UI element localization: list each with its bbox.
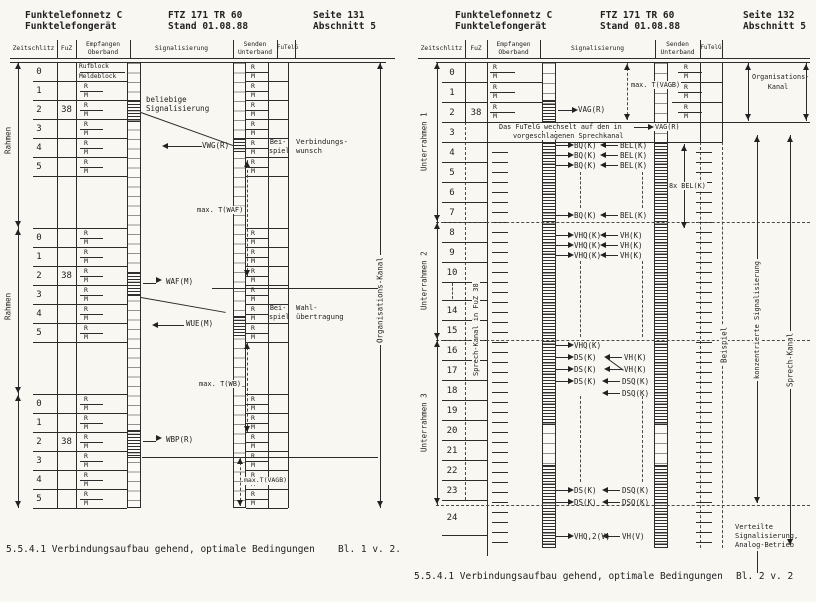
grid-line	[80, 333, 103, 334]
grid-line	[33, 304, 127, 305]
grid-line	[33, 342, 127, 343]
tick	[492, 192, 508, 193]
slot-number: 1	[28, 86, 50, 97]
sprechkanal-fuz-label: Sprech-Kanal in FuZ 38	[469, 230, 483, 430]
arrow-up-icon	[244, 161, 250, 167]
dashed-line	[642, 261, 643, 337]
slot-number: 4	[28, 309, 50, 320]
sprechkanal-label-text: Sprech-Kanal	[786, 331, 795, 389]
dimension-line	[806, 63, 807, 121]
signal-label: BEL(K)	[620, 161, 647, 170]
slot-number: 9	[440, 248, 464, 259]
grid-line	[246, 404, 268, 405]
column-header: Unterband	[233, 49, 277, 57]
grid-line	[80, 91, 103, 92]
rm-label: R	[251, 268, 255, 276]
grid-line	[608, 393, 620, 394]
rm-label: R	[84, 83, 88, 91]
grid-line	[142, 457, 378, 458]
tick	[696, 282, 712, 283]
grid-line	[490, 112, 515, 113]
grid-line	[80, 167, 103, 168]
grid-line	[80, 314, 103, 315]
grid-line	[418, 58, 810, 59]
grid-line	[608, 381, 620, 382]
organisationskanal-label: Organisations-Kanal	[373, 225, 387, 375]
tick	[492, 522, 508, 523]
slot-number: 22	[440, 466, 464, 477]
tick	[492, 212, 508, 213]
rm-label: M	[251, 130, 255, 138]
rm-label: R	[251, 396, 255, 404]
unterrahmen-label-text: Unterrahmen 2	[420, 250, 429, 313]
tick	[492, 392, 508, 393]
rm-label: R	[84, 396, 88, 404]
column-header: Signalisierung	[130, 45, 233, 53]
rm-label: R	[84, 121, 88, 129]
tick	[492, 322, 508, 323]
grid-line	[608, 502, 620, 503]
rm-label: R	[684, 64, 688, 72]
tick	[696, 252, 712, 253]
grid-line	[33, 413, 127, 414]
grid-line	[442, 480, 487, 481]
grid-line	[608, 536, 620, 537]
grid-line	[80, 404, 103, 405]
slot-number: 5	[28, 328, 50, 339]
rm-label: M	[493, 93, 497, 101]
timer-label: max. T(VAGB)	[630, 81, 681, 89]
rahmen-label-text: Rahmen	[4, 290, 13, 321]
tick	[492, 452, 508, 453]
grid-line	[556, 235, 568, 236]
rm-label: M	[84, 462, 88, 470]
grid-line	[490, 72, 515, 73]
rm-label: M	[84, 239, 88, 247]
tick	[492, 152, 508, 153]
rm-label: R	[251, 325, 255, 333]
tick	[492, 232, 508, 233]
grid-line	[246, 91, 268, 92]
signal-label: DS(K)	[574, 377, 597, 386]
grid-line	[490, 92, 515, 93]
signal-label: DS(K)	[574, 498, 597, 507]
rm-label: R	[251, 159, 255, 167]
tick	[696, 392, 712, 393]
arrow-down-icon	[745, 114, 751, 120]
grid-line	[80, 257, 103, 258]
rm-label: R	[251, 64, 255, 72]
tick	[696, 272, 712, 273]
grid-line	[606, 215, 618, 216]
slot-number: 2	[28, 271, 50, 282]
tick	[696, 262, 712, 263]
rm-label: M	[684, 73, 688, 81]
rm-label: M	[493, 113, 497, 121]
slot-number: 5	[440, 168, 464, 179]
rm-label: M	[84, 334, 88, 342]
caption: 5.5.4.1 Verbindungsaufbau gehend, optima…	[414, 571, 723, 582]
slot-number: 18	[440, 386, 464, 397]
slot-number: 2	[440, 108, 464, 119]
grid-line	[80, 238, 103, 239]
rm-label: M	[251, 258, 255, 266]
dimension-line	[437, 340, 438, 505]
rm-label: M	[84, 481, 88, 489]
slot-number: 4	[440, 148, 464, 159]
signal-label: BEL(K)	[620, 141, 647, 150]
tick	[696, 362, 712, 363]
tick	[492, 432, 508, 433]
signal-label: DSQ(K)	[622, 486, 649, 495]
rm-label: R	[684, 84, 688, 92]
grid-line	[33, 470, 127, 471]
grid-line	[80, 129, 103, 130]
grid-line	[80, 276, 103, 277]
rm-label: M	[251, 149, 255, 157]
rm-label: R	[251, 306, 255, 314]
grid-line	[442, 122, 487, 123]
arrow-up-icon	[15, 229, 21, 235]
doc-ref: Stand 01.08.88	[168, 21, 248, 32]
rahmen-label-text: Rahmen	[4, 124, 13, 155]
arrow-down-icon	[15, 501, 21, 507]
annotation: Bei-	[269, 304, 287, 312]
grid-line	[246, 110, 268, 111]
signal-label: VH(K)	[620, 251, 643, 260]
signal-label: WAF(M)	[166, 277, 193, 286]
slot-number: 2	[28, 437, 50, 448]
arrow-up-icon	[377, 63, 383, 69]
signal-label: DS(K)	[574, 353, 597, 362]
annotation: beliebige	[146, 95, 187, 104]
grid-line	[442, 500, 487, 501]
rm-label: R	[684, 104, 688, 112]
grid-line	[168, 146, 202, 147]
arrow-right-icon	[156, 277, 162, 283]
slot-number: 8	[440, 228, 464, 239]
grid-line	[442, 440, 487, 441]
grid-line	[33, 176, 127, 177]
fuz-value: 38	[57, 271, 76, 282]
dimension-line	[18, 394, 19, 508]
signal-label: WBP(R)	[166, 435, 193, 444]
grid-line	[80, 480, 103, 481]
grid-line	[490, 82, 542, 83]
konzentrierte-signalisierung-label-text: konzentrierte Signalisierung	[753, 259, 761, 381]
grid-line	[33, 266, 127, 267]
grid-line	[606, 165, 618, 166]
grid-line	[33, 247, 127, 248]
tick	[696, 292, 712, 293]
grid-line	[246, 72, 268, 73]
arrow-down-icon	[434, 498, 440, 504]
rm-label: M	[84, 405, 88, 413]
timer-label: max.T(VAGB)	[243, 477, 288, 485]
dashed-line	[247, 342, 248, 432]
grid-line	[606, 255, 618, 256]
grid-line	[33, 285, 127, 286]
slot-number: 1	[28, 418, 50, 429]
tick	[492, 442, 508, 443]
grid-line	[33, 81, 127, 82]
arrow-up-icon	[434, 223, 440, 229]
hatch-block	[127, 100, 141, 122]
rm-label: R	[251, 140, 255, 148]
rm-label: R	[84, 491, 88, 499]
grid-line	[80, 110, 103, 111]
rm-label: M	[251, 111, 255, 119]
beispiel-label-text: Beispiel	[720, 325, 729, 365]
grid-line	[143, 441, 156, 442]
grid-line	[33, 489, 127, 490]
grid-line	[606, 235, 618, 236]
grid-line	[212, 288, 378, 289]
slot-number: 5	[28, 162, 50, 173]
slot-number: 2	[28, 105, 50, 116]
grid-line	[246, 176, 288, 177]
dashed-line	[580, 396, 581, 482]
grid-line	[757, 551, 758, 573]
grid-line	[442, 82, 487, 83]
scanned-document-page: Funktelefonnetz CFunktelefongerätFTZ 171…	[0, 0, 816, 602]
rm-label: R	[84, 249, 88, 257]
grid-line	[246, 238, 268, 239]
annotation: wunsch	[296, 147, 322, 156]
grid-line	[288, 62, 289, 508]
dashed-line	[240, 457, 241, 506]
tick	[696, 482, 712, 483]
signal-label: VHQ(K)	[574, 231, 601, 240]
tick	[696, 372, 712, 373]
grid-line	[246, 129, 268, 130]
rm-label: M	[251, 277, 255, 285]
tick	[696, 342, 712, 343]
arrow-down-icon	[15, 387, 21, 393]
section-number: Abschnitt 5	[313, 21, 376, 32]
rm-label: R	[251, 230, 255, 238]
grid-line	[556, 345, 568, 346]
tick	[696, 312, 712, 313]
rm-label: M	[251, 73, 255, 81]
arrow-down-icon	[377, 501, 383, 507]
arrow-down-icon	[434, 333, 440, 339]
tick	[492, 362, 508, 363]
arrow-down-icon	[681, 222, 687, 228]
tick	[696, 442, 712, 443]
rm-label: R	[84, 325, 88, 333]
rm-label: R	[84, 434, 88, 442]
rm-label: R	[84, 268, 88, 276]
annotation: Signalisierung	[146, 104, 209, 113]
signal-label: DSQ(K)	[622, 377, 649, 386]
rm-label: R	[84, 159, 88, 167]
tick	[492, 332, 508, 333]
grid-line	[556, 245, 568, 246]
rm-label: M	[84, 443, 88, 451]
signal-label: VH(K)	[620, 231, 643, 240]
arrow-up-icon	[803, 64, 809, 70]
tick	[492, 402, 508, 403]
grid-line	[442, 142, 487, 143]
organisationskanal-label-text: Organisations-Kanal	[376, 255, 385, 345]
rm-label: M	[251, 405, 255, 413]
annotation: übertragung	[296, 313, 344, 322]
slot-number: 4	[28, 475, 50, 486]
sheet-number: Bl. 1 v. 2.	[338, 544, 401, 555]
tick	[492, 462, 508, 463]
signal-label: VH(K)	[620, 241, 643, 250]
rm-label: M	[251, 424, 255, 432]
fuz-value: 38	[57, 437, 76, 448]
rm-label: M	[684, 113, 688, 121]
tick	[696, 322, 712, 323]
dashed-line	[580, 172, 581, 208]
rm-label: M	[251, 500, 255, 508]
rm-label: M	[251, 296, 255, 304]
dashed-line	[247, 160, 248, 276]
grid-line	[556, 357, 568, 358]
dashed-line	[436, 222, 810, 223]
konzentrierte-signalisierung-label: konzentrierte Signalisierung	[750, 230, 764, 410]
rm-label: R	[251, 491, 255, 499]
arrow-up-icon	[681, 145, 687, 151]
arrow-up-icon	[624, 64, 630, 70]
tick	[492, 172, 508, 173]
arrow-up-icon	[754, 136, 760, 142]
grid-line	[606, 245, 618, 246]
grid-line	[80, 442, 103, 443]
arrow-up-icon	[15, 63, 21, 69]
dimension-line	[437, 222, 438, 340]
hatch-block	[542, 142, 556, 425]
tick	[696, 332, 712, 333]
arrow-down-icon	[244, 426, 250, 432]
rm-label: M	[251, 334, 255, 342]
dimension-line	[18, 62, 19, 228]
rm-label: R	[84, 306, 88, 314]
page-title: Funktelefonnetz C	[25, 10, 122, 21]
signal-label: WUE(M)	[186, 319, 213, 328]
tick	[492, 252, 508, 253]
tick	[696, 532, 712, 533]
slot-number: 14	[440, 306, 464, 317]
annotation: Signalisierung,	[735, 532, 798, 540]
signal-label: VAG(R)	[578, 105, 605, 114]
unterrahmen-label-text: Unterrahmen 3	[420, 391, 429, 454]
rm-label: R	[251, 415, 255, 423]
arrow-right-icon	[156, 435, 162, 441]
slot-number: 17	[440, 366, 464, 377]
organisationskanal-label: Kanal	[752, 83, 804, 91]
grid-line	[33, 508, 127, 509]
grid-line	[80, 72, 125, 73]
tick	[492, 492, 508, 493]
arrow-down-icon	[15, 221, 21, 227]
grid-line	[246, 333, 268, 334]
grid-line	[608, 490, 620, 491]
annotation: spiel	[269, 147, 287, 155]
grid-line	[556, 490, 568, 491]
grid-line	[33, 228, 127, 229]
tick	[492, 422, 508, 423]
column-header: Oberband	[487, 49, 540, 57]
tick	[696, 412, 712, 413]
column-header: Signalisierung	[540, 45, 655, 53]
arrow-down-icon	[803, 114, 809, 120]
tick	[696, 472, 712, 473]
tick	[492, 182, 508, 183]
grid-line	[722, 62, 723, 142]
grid-line	[722, 40, 723, 58]
slot-number: 3	[28, 456, 50, 467]
hatch-block	[127, 430, 141, 458]
grid-line	[678, 72, 702, 73]
tick	[492, 382, 508, 383]
tick	[492, 482, 508, 483]
rm-label: R	[493, 64, 497, 72]
channel-strip	[233, 62, 246, 508]
signal-label: DS(K)	[574, 486, 597, 495]
rm-label: R	[84, 230, 88, 238]
slot-number: 0	[28, 67, 50, 78]
rm-label: R	[251, 83, 255, 91]
grid-line	[442, 182, 487, 183]
tick	[696, 542, 712, 543]
timer-label: max. T(WAF)	[196, 206, 244, 214]
page-number: Seite 131	[313, 10, 364, 21]
slot-number: 15	[440, 326, 464, 337]
dashed-line	[627, 63, 628, 120]
tick	[696, 452, 712, 453]
slot-number: 16	[440, 346, 464, 357]
grid-line	[33, 100, 127, 101]
annotation: spiel	[269, 313, 287, 321]
grid-line	[158, 325, 184, 326]
rm-label: R	[84, 415, 88, 423]
rm-label: M	[251, 315, 255, 323]
grid-line	[246, 423, 268, 424]
hatch-block	[127, 272, 141, 296]
tick	[696, 382, 712, 383]
column-header: Empfangen	[76, 41, 130, 49]
tick	[492, 292, 508, 293]
slot-number: 21	[440, 446, 464, 457]
rm-label: M	[84, 92, 88, 100]
grid-line	[558, 110, 572, 111]
doc-ref: FTZ 171 TR 60	[600, 10, 674, 21]
signal-label: BQ(K)	[574, 161, 597, 170]
dashed-line	[642, 172, 643, 208]
dimension-line	[18, 228, 19, 394]
tick	[696, 402, 712, 403]
grid-line	[556, 381, 568, 382]
tick	[696, 462, 712, 463]
signal-label: VAG(R)	[654, 123, 681, 131]
grid-line	[610, 357, 622, 358]
grid-line	[33, 432, 127, 433]
rm-label: R	[251, 249, 255, 257]
tick	[696, 492, 712, 493]
annotation: 8x BEL(K)	[668, 182, 707, 190]
slot-number: 4	[28, 143, 50, 154]
annotation: Bei-	[269, 138, 287, 146]
unterrahmen-label: Unterrahmen 1	[417, 77, 431, 207]
grid-line	[33, 451, 127, 452]
tick	[492, 262, 508, 263]
grid-line	[246, 461, 268, 462]
grid-line	[490, 102, 542, 103]
